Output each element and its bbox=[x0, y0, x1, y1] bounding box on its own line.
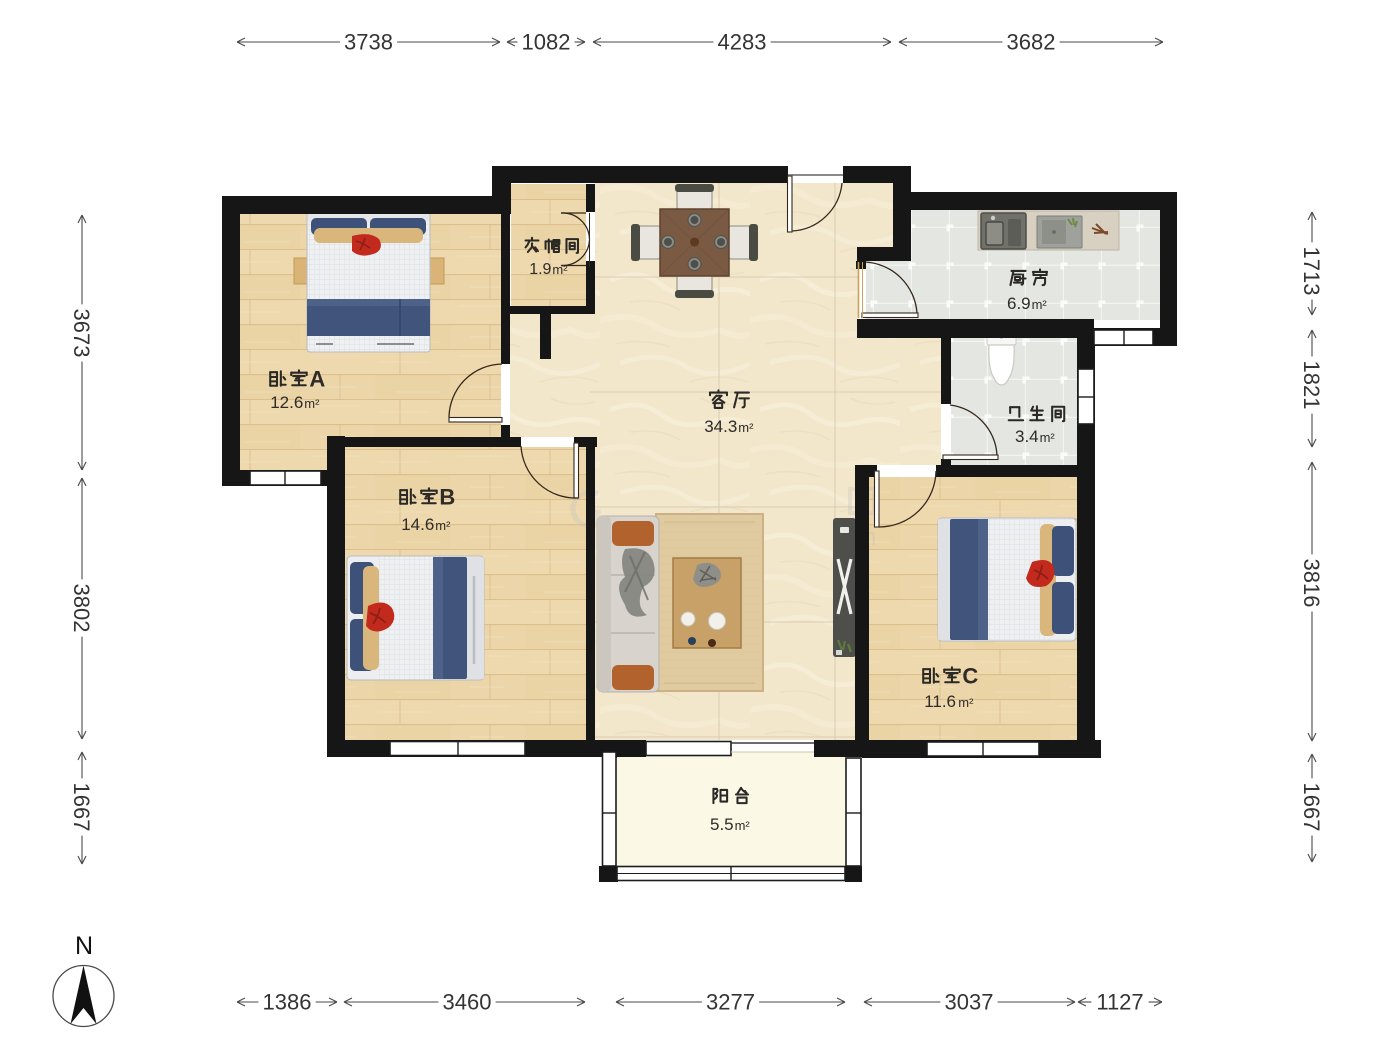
svg-text:3.4: 3.4 bbox=[1015, 427, 1039, 446]
svg-text:m²: m² bbox=[304, 396, 320, 411]
svg-text:m²: m² bbox=[552, 262, 568, 277]
svg-text:1667: 1667 bbox=[1299, 783, 1324, 832]
svg-text:m²: m² bbox=[958, 695, 974, 710]
svg-text:N: N bbox=[75, 932, 93, 960]
svg-text:6.9: 6.9 bbox=[1007, 294, 1031, 313]
svg-text:B: B bbox=[439, 485, 455, 510]
svg-text:12.6: 12.6 bbox=[270, 393, 303, 412]
svg-text:C: C bbox=[962, 664, 978, 689]
svg-text:14.6: 14.6 bbox=[401, 515, 434, 534]
svg-text:1713: 1713 bbox=[1299, 247, 1324, 296]
svg-text:m²: m² bbox=[738, 420, 754, 435]
svg-text:1.9: 1.9 bbox=[529, 261, 551, 278]
svg-text:1386: 1386 bbox=[263, 990, 312, 1015]
svg-text:3802: 3802 bbox=[69, 584, 94, 633]
svg-text:3037: 3037 bbox=[945, 990, 994, 1015]
svg-text:m²: m² bbox=[1032, 297, 1048, 312]
svg-text:3816: 3816 bbox=[1299, 559, 1324, 608]
svg-text:1127: 1127 bbox=[1096, 990, 1143, 1015]
svg-text:3738: 3738 bbox=[344, 30, 393, 55]
svg-text:m²: m² bbox=[1040, 430, 1056, 445]
svg-text:3682: 3682 bbox=[1007, 30, 1056, 55]
svg-text:m²: m² bbox=[435, 518, 451, 533]
svg-text:34.3: 34.3 bbox=[704, 417, 737, 436]
svg-text:3277: 3277 bbox=[706, 990, 755, 1015]
svg-text:1821: 1821 bbox=[1299, 361, 1324, 410]
svg-text:3460: 3460 bbox=[443, 990, 492, 1015]
svg-text:11.6: 11.6 bbox=[924, 692, 956, 711]
svg-text:3673: 3673 bbox=[69, 309, 94, 358]
svg-text:1667: 1667 bbox=[69, 783, 94, 832]
svg-text:A: A bbox=[309, 367, 325, 392]
svg-text:m²: m² bbox=[735, 818, 751, 833]
svg-text:1082: 1082 bbox=[522, 30, 571, 55]
svg-text:4283: 4283 bbox=[718, 30, 767, 55]
svg-text:5.5: 5.5 bbox=[710, 815, 734, 834]
